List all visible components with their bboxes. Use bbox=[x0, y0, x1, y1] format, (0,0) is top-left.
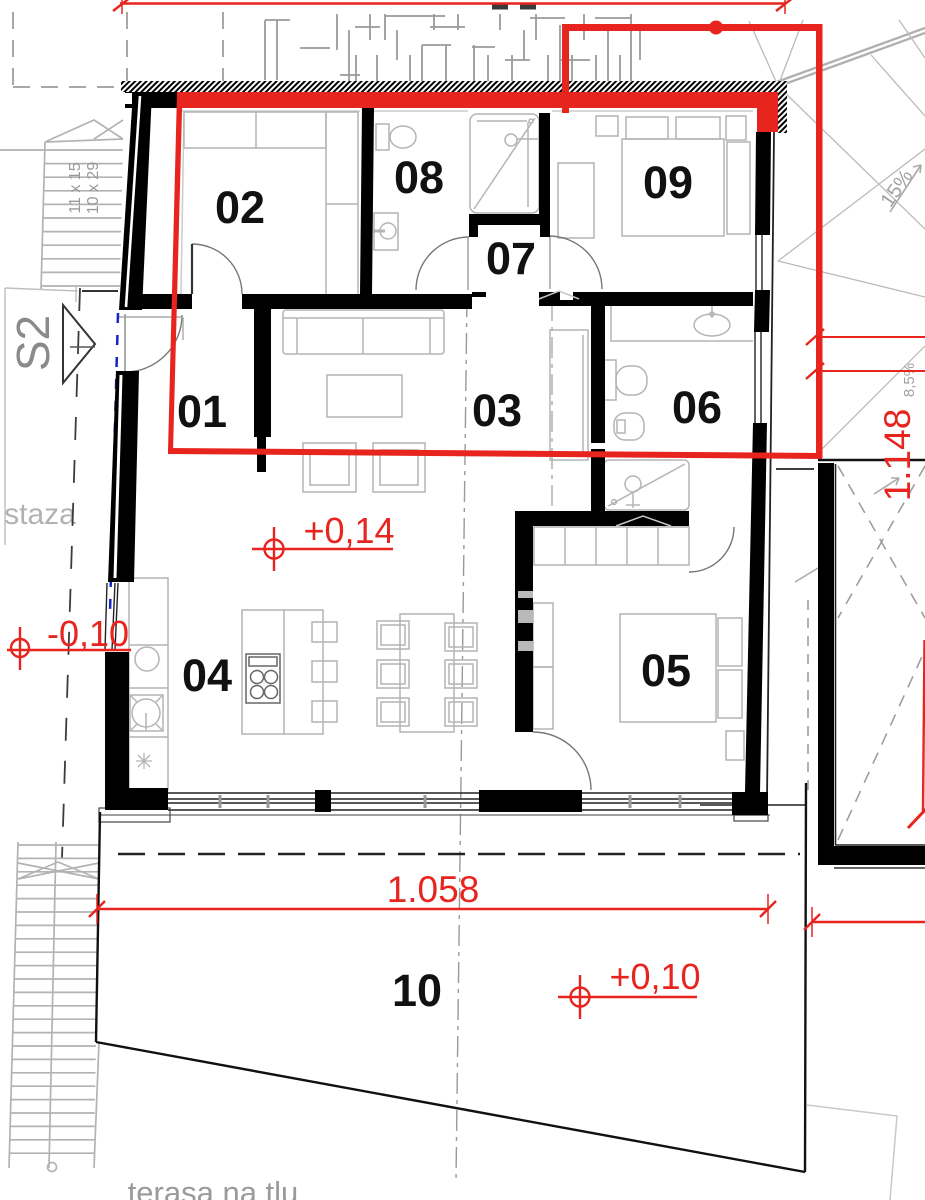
svg-text:06: 06 bbox=[672, 382, 722, 433]
svg-text:03: 03 bbox=[472, 385, 522, 436]
svg-text:+0,10: +0,10 bbox=[609, 956, 700, 997]
svg-text:05: 05 bbox=[641, 645, 691, 696]
svg-text:07: 07 bbox=[486, 233, 536, 284]
svg-text:02: 02 bbox=[215, 182, 265, 233]
svg-text:8,5%: 8,5% bbox=[901, 363, 918, 397]
svg-text:-0,10: -0,10 bbox=[47, 613, 129, 654]
svg-text:1.148: 1.148 bbox=[877, 409, 918, 502]
svg-text:04: 04 bbox=[182, 650, 232, 701]
svg-text:01: 01 bbox=[177, 386, 227, 437]
svg-text:S2: S2 bbox=[7, 315, 59, 371]
svg-text:+0,14: +0,14 bbox=[303, 510, 394, 551]
svg-text:1.058: 1.058 bbox=[387, 869, 480, 910]
svg-text:staza: staza bbox=[4, 498, 76, 531]
svg-text:11 x 15: 11 x 15 bbox=[67, 162, 84, 213]
svg-text:08: 08 bbox=[394, 152, 444, 203]
svg-text:10: 10 bbox=[392, 965, 442, 1016]
svg-text:10 x 29: 10 x 29 bbox=[85, 162, 102, 215]
svg-text:terasa na tlu: terasa na tlu bbox=[128, 1175, 299, 1200]
svg-text:09: 09 bbox=[643, 157, 693, 208]
